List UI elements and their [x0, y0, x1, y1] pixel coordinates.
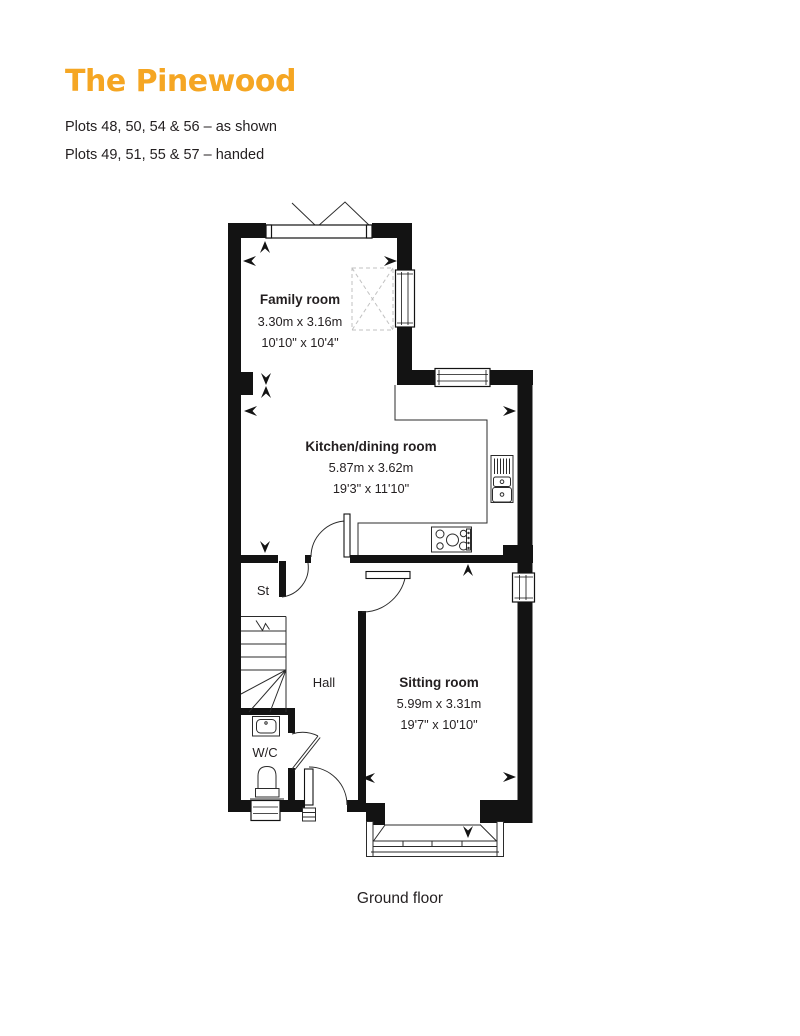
kitchen-imperial: 19'3" x 11'10": [333, 481, 409, 496]
arrow-left-icon: [243, 256, 256, 266]
wall-segment: [228, 223, 266, 238]
family-room-window: [396, 270, 415, 327]
arrow-down-icon: [463, 826, 473, 838]
family-room-metric: 3.30m x 3.16m: [258, 314, 343, 329]
floor-caption: Ground floor: [357, 890, 443, 907]
wall-segment: [347, 800, 366, 812]
front-door: [303, 767, 348, 821]
arrow-right-icon: [503, 406, 516, 416]
wall-segment: [241, 555, 278, 563]
floorplan-drawing: Family room 3.30m x 3.16m 10'10" x 10'4"…: [0, 0, 800, 1036]
sitting-room-imperial: 19'7" x 10'10": [400, 717, 477, 732]
arrow-right-icon: [384, 256, 397, 266]
wc-window: [251, 801, 280, 821]
family-room-imperial: 10'10" x 10'4": [261, 335, 338, 350]
kitchen-door: [311, 514, 350, 557]
wc-door: [292, 732, 320, 770]
wall-segment: [358, 611, 366, 812]
rooflight-diagonals: [352, 268, 393, 330]
arrow-right-icon: [503, 772, 516, 782]
arrow-down-icon: [261, 373, 271, 385]
floorplan-page: The Pinewood Plots 48, 50, 54 & 56 – as …: [0, 0, 800, 1036]
arrow-left-icon: [244, 406, 257, 416]
wall-segment: [397, 326, 412, 385]
sink-unit: [491, 456, 513, 503]
sitting-room-side-window: [513, 573, 535, 602]
sitting-room-metric: 5.99m x 3.31m: [397, 696, 482, 711]
hall-label: Hall: [313, 675, 336, 690]
rooflight: [352, 268, 393, 330]
bay-window: [367, 822, 504, 857]
kitchen-name: Kitchen/dining room: [305, 439, 436, 454]
stair-break-mark: [256, 621, 270, 631]
bifold-frame: [266, 225, 372, 238]
wall-segment: [288, 715, 295, 733]
wall-segment: [503, 545, 533, 563]
opening-indicator-arrows: [243, 241, 516, 838]
kitchen-metric: 5.87m x 3.62m: [329, 460, 414, 475]
front-door-leaf: [305, 769, 314, 805]
wall-segment: [397, 238, 412, 270]
wall-segment: [410, 370, 435, 385]
wall-segment: [228, 223, 241, 812]
store-door: [279, 561, 308, 597]
wall-segment: [480, 800, 533, 823]
wall-segment: [228, 800, 251, 812]
arrow-up-icon: [261, 386, 271, 398]
wall-segment: [305, 555, 311, 563]
sitting-room-door-leaf: [366, 572, 410, 579]
wall-segment: [288, 768, 295, 812]
store-door-leaf: [279, 561, 286, 597]
toilet: [250, 767, 284, 800]
sitting-room-door: [362, 572, 410, 613]
stair-winders: [241, 670, 286, 712]
basin: [253, 717, 280, 737]
front-door-threshold: [303, 808, 316, 821]
bifold-end-cap: [266, 225, 272, 238]
kitchen-door-leaf: [344, 514, 350, 557]
family-room-name: Family room: [260, 292, 340, 307]
bifold-end-cap: [367, 225, 373, 238]
sitting-room-name: Sitting room: [399, 675, 479, 690]
wc-door-leaf: [292, 736, 320, 771]
kitchen-window: [435, 369, 490, 387]
windows: [251, 270, 535, 821]
wc-label: W/C: [252, 745, 277, 760]
bifold-zigzag: [292, 202, 371, 227]
arrow-down-icon: [260, 541, 270, 553]
wall-segment: [518, 370, 533, 573]
bifold-doors: [266, 202, 372, 238]
hob: [432, 527, 472, 552]
staircase: [241, 617, 286, 713]
meter-recess: [241, 372, 253, 395]
store-label: St: [257, 583, 270, 598]
arrow-up-icon: [260, 241, 270, 253]
arrow-up-icon: [463, 564, 473, 576]
wall-segment: [372, 223, 412, 238]
wall-segment: [350, 555, 518, 563]
wall-segment: [518, 602, 533, 823]
